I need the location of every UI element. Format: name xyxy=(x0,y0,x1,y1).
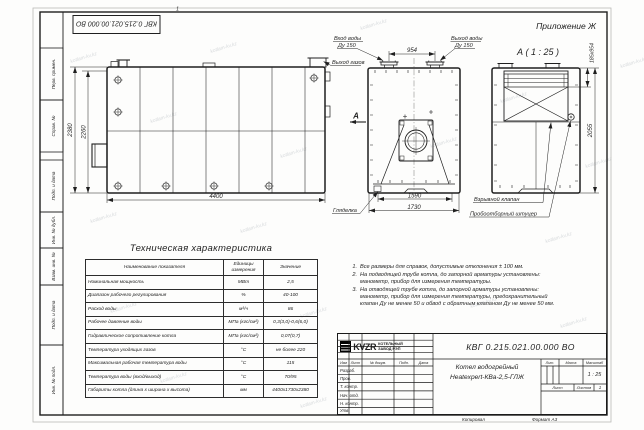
dim-2380: 2380 xyxy=(68,123,74,138)
row-utv: Утв. xyxy=(338,408,362,415)
tt-cell: МВт xyxy=(224,276,264,290)
margin-label: Взам. инв. № xyxy=(51,252,56,280)
note-number: 2. xyxy=(349,272,357,286)
title-block: КВГ 0.215.021.00.000 ВО Котел водогрейны… xyxy=(337,333,607,415)
format-label: Формат А3 xyxy=(532,417,557,422)
table-row: Температура воды (вход/выход)°С70/95 xyxy=(86,371,318,385)
drawing-sheet: kotlam-kv.kz kotlam-kv.kz kotlam-kv.kz k… xyxy=(0,0,644,430)
tt-cell: 40-100 xyxy=(264,289,318,303)
tt-cell: 2,5 xyxy=(264,276,318,290)
tt-cell: 70/95 xyxy=(264,371,318,385)
note-item: 3. На отводящей трубе котла, до запорной… xyxy=(349,287,561,307)
tt-cell: 115 xyxy=(264,357,318,371)
tt-header: Единицы измерения xyxy=(224,260,264,276)
tt-cell: Расход воды xyxy=(86,303,224,317)
tt-cell: 4400х1730х2380 xyxy=(264,384,318,398)
product-name-line1: Котел водогрейный xyxy=(456,363,519,373)
tt-cell: Гидравлическое сопротивление котла xyxy=(86,330,224,344)
explosion-valve-label: Взрывной клапан xyxy=(474,196,519,203)
tt-cell: °С xyxy=(224,357,264,371)
scale-value: 1 : 25 xyxy=(583,366,606,384)
mass-label: Масса xyxy=(559,359,583,366)
tt-cell: Температура уходящих газов xyxy=(86,343,224,357)
margin-label: Перв. примен. xyxy=(51,59,56,90)
lit-label: Лит. xyxy=(541,359,559,366)
tt-cell: не более 220 xyxy=(264,343,318,357)
zone-mark: 1 xyxy=(176,7,179,13)
col-podp: Подп. xyxy=(394,359,414,366)
table-row: Номинальная мощностьМВт2,5 xyxy=(86,276,318,290)
dim-2055: 2055 xyxy=(588,123,594,138)
bottom-margin: Копировал Формат А3 xyxy=(400,416,607,423)
dim-2260: 2260 xyxy=(82,125,88,140)
water-outlet-dn: Ду 150 xyxy=(454,43,474,49)
margin-label: Подп. и дата xyxy=(51,300,56,329)
row-nachotd: Нач. отд. xyxy=(338,391,362,399)
col-izm: Изм xyxy=(338,359,349,366)
tt-cell: Максимальная рабочая температура воды xyxy=(86,357,224,371)
dim-4400: 4400 xyxy=(209,194,223,200)
margin-label: Инв. № дубл. xyxy=(51,216,56,244)
margin-label: Инв. № подл. xyxy=(51,366,56,395)
note-number: 3. xyxy=(349,287,357,307)
tech-table-title: Техническая характеристика xyxy=(85,243,317,254)
margin-column: Перв. примен. Справ. № Подп. и дата Инв.… xyxy=(51,59,56,395)
table-row: Рабочее давление водыМПа (кгс/см²)0,3(3,… xyxy=(86,316,318,330)
tt-header: Значение xyxy=(264,260,318,276)
notes-block: 1. Все размеры для справок, допустимые о… xyxy=(349,264,561,309)
product-name-line2: Heatexpert-КВа-2,5-ГЛЖ xyxy=(450,373,524,383)
note-item: 2. На подводящей трубе котла, до запорно… xyxy=(349,272,561,286)
dim-hatch: 185х954 xyxy=(590,43,596,63)
copied-label: Копировал xyxy=(462,417,485,422)
row-nkontr: Н. контр. xyxy=(338,399,362,407)
tt-cell: °С xyxy=(224,343,264,357)
side-view-dimensions xyxy=(70,67,325,203)
appendix-label: Приложение Ж xyxy=(536,21,597,31)
product-name: Котел водогрейный Heatexpert-КВа-2,5-ГЛЖ xyxy=(433,359,541,416)
tt-cell: МПа (кгс/см²) xyxy=(224,330,264,344)
dim-1730: 1730 xyxy=(407,205,421,211)
note-item: 1. Все размеры для справок, допустимые о… xyxy=(349,264,561,271)
col-docnum: № докум. xyxy=(362,359,394,366)
tt-cell: 86 xyxy=(264,303,318,317)
table-row: Габариты котла (длина х ширина х высота)… xyxy=(86,384,318,398)
tt-cell: Номинальная мощность xyxy=(86,276,224,290)
section-view xyxy=(492,64,580,194)
dim-1590: 1590 xyxy=(408,194,422,200)
dim-954: 954 xyxy=(407,48,418,54)
margin-label: Подп. и дата xyxy=(51,171,56,200)
sight-glass-label: Гляделка xyxy=(333,208,357,214)
tech-table-header-row: Наименование показателя Единицы измерени… xyxy=(86,260,318,276)
title-block-designation: КВГ 0.215.021.00.000 ВО xyxy=(433,334,608,359)
tt-cell: Диапазон рабочего регулирования xyxy=(86,289,224,303)
tt-cell: м³/ч xyxy=(224,303,264,317)
col-list: Лист xyxy=(349,359,362,366)
tt-cell: 0,07(0,7) xyxy=(264,330,318,344)
sheets-value: 1 xyxy=(594,384,606,391)
section-arrow-letter: А xyxy=(352,112,359,121)
note-text: Все размеры для справок, допустимые откл… xyxy=(360,264,561,271)
tt-cell: °С xyxy=(224,371,264,385)
sheet-label: Лист xyxy=(541,384,574,391)
tt-cell: 0,3(3,0)-0,6(6,0) xyxy=(264,316,318,330)
tt-cell: Температура воды (вход/выход) xyxy=(86,371,224,385)
water-inlet-dn: Ду 150 xyxy=(337,43,357,49)
scale-label: Масштаб xyxy=(583,359,606,366)
note-number: 1. xyxy=(349,264,357,271)
table-row: Расход водым³/ч86 xyxy=(86,303,318,317)
water-outlet-label: Выход воды xyxy=(451,36,482,42)
table-row: Максимальная рабочая температура воды°С1… xyxy=(86,357,318,371)
tt-cell: % xyxy=(224,289,264,303)
tech-table: Наименование показателя Единицы измерени… xyxy=(85,259,318,398)
section-title: А ( 1 : 25 ) xyxy=(516,47,559,57)
row-prov: Пров. xyxy=(338,374,362,382)
margin-label: Справ. № xyxy=(51,116,56,137)
col-data: Дата xyxy=(414,359,433,366)
tt-header: Наименование показателя xyxy=(86,260,224,276)
tt-cell: Рабочее давление воды xyxy=(86,316,224,330)
table-row: Температура уходящих газов°Сне более 220 xyxy=(86,343,318,357)
inverted-stamp: КВГ 0.215.021.00.000 ВО xyxy=(75,20,157,27)
gas-outlet-label: Выход газов xyxy=(332,60,365,66)
tt-cell: Габариты котла (длина х ширина х высота) xyxy=(86,384,224,398)
row-razrab: Разраб. xyxy=(338,366,362,374)
note-text: На подводящей трубе котла, до запорной а… xyxy=(360,272,561,286)
note-text: На отводящей трубе котла, до запорной ар… xyxy=(360,287,561,307)
tt-cell: мм xyxy=(224,384,264,398)
tt-cell: МПа (кгс/см²) xyxy=(224,316,264,330)
water-inlet-label: Вход воды xyxy=(334,36,361,42)
sheets-label: Листов xyxy=(574,384,594,391)
sampling-nozzle-label: Пробоотборный штуцер xyxy=(470,211,537,218)
side-view xyxy=(92,58,330,193)
table-row: Гидравлическое сопротивление котлаМПа (к… xyxy=(86,330,318,344)
row-tkontr: Т. контр. xyxy=(338,383,362,391)
table-row: Диапазон рабочего регулирования%40-100 xyxy=(86,289,318,303)
front-view xyxy=(368,58,460,197)
